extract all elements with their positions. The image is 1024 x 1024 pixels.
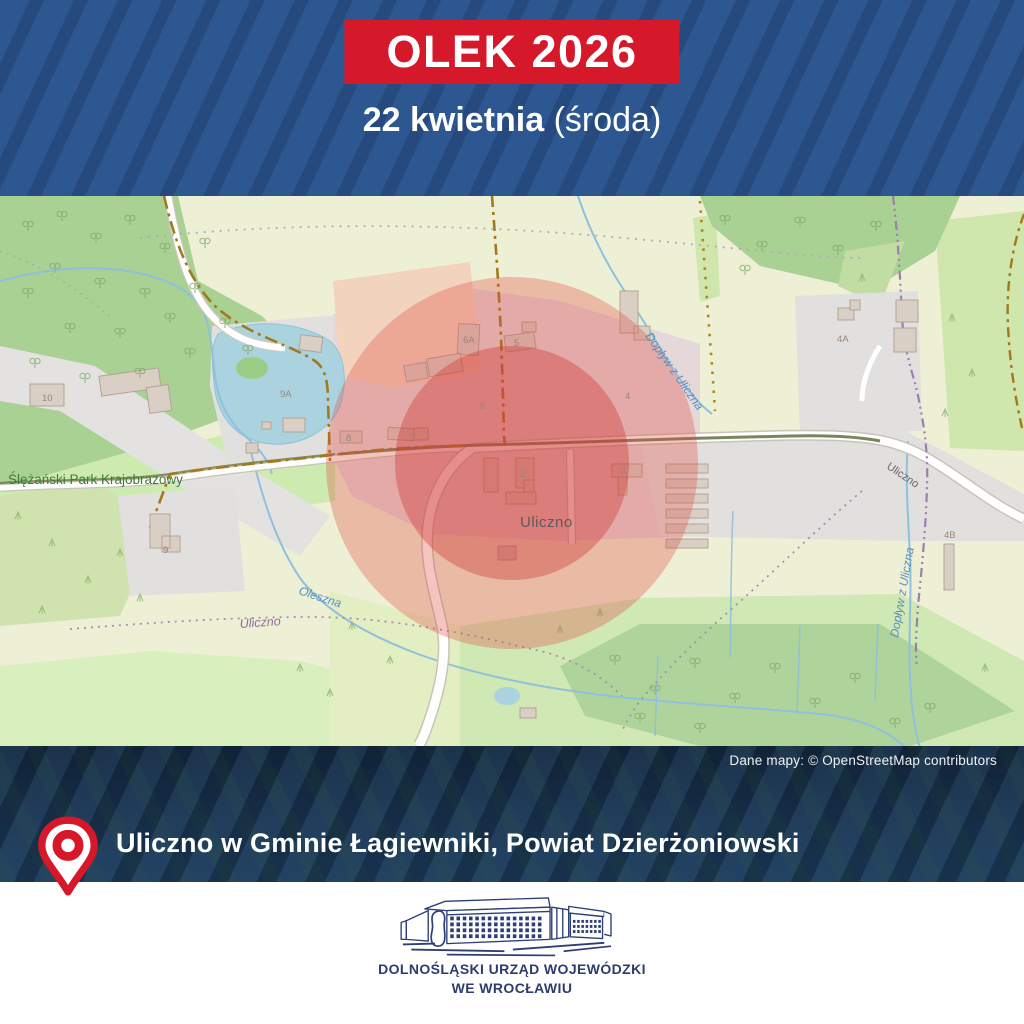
house-number: 4A (837, 334, 849, 345)
house-number: 9A (280, 389, 292, 400)
event-title-banner: OLEK 2026 (344, 20, 679, 84)
house-number: 7 (408, 432, 413, 443)
village-label: Uliczno (520, 514, 573, 531)
org-name-line1: DOLNOŚLĄSKI URZĄD WOJEWÓDZKI (378, 961, 646, 977)
house-number: 5 (514, 338, 519, 349)
house-number: 2 (520, 469, 525, 480)
event-title: OLEK 2026 (386, 26, 637, 78)
map-svg: Ślężański Park Krajobrazowy Uliczno Oles… (0, 196, 1024, 746)
house-number: 6 (480, 401, 485, 412)
house-number: 8 (346, 433, 351, 444)
house-number: 10 (42, 393, 53, 404)
event-date: 22 kwietnia (środa) (0, 101, 1024, 140)
alert-zone-inner-circle (395, 346, 629, 580)
house-number: 4 (625, 391, 630, 402)
map-pond (212, 324, 344, 444)
house-number: 4B (944, 530, 956, 541)
voivodeship-office-logo (377, 892, 647, 958)
location-text: Uliczno w Gminie Łagiewniki, Powiat Dzie… (116, 828, 800, 859)
event-date-weekday: (środa) (544, 101, 661, 139)
announcement-poster: OLEK 2026 22 kwietnia (środa) (0, 0, 1024, 1024)
house-number: 6A (463, 335, 475, 346)
footer-section: DOLNOŚLĄSKI URZĄD WOJEWÓDZKI WE WROCŁAWI… (0, 882, 1024, 1024)
house-number: 9 (163, 545, 168, 556)
boundary-locality-label: Uliczno (239, 614, 281, 631)
house-number: 3 (621, 466, 626, 477)
park-label: Ślężański Park Krajobrazowy (8, 472, 183, 487)
location-band: Dane mapy: © OpenStreetMap contributors … (0, 746, 1024, 882)
org-name-line2: WE WROCŁAWIU (452, 980, 573, 996)
header-banner-section: OLEK 2026 22 kwietnia (środa) (0, 0, 1024, 196)
map-attribution: Dane mapy: © OpenStreetMap contributors (729, 753, 997, 768)
event-date-day: 22 kwietnia (363, 101, 544, 139)
location-pin-icon (37, 816, 99, 898)
map-section: Ślężański Park Krajobrazowy Uliczno Oles… (0, 196, 1024, 746)
map-small-pond (494, 687, 520, 705)
